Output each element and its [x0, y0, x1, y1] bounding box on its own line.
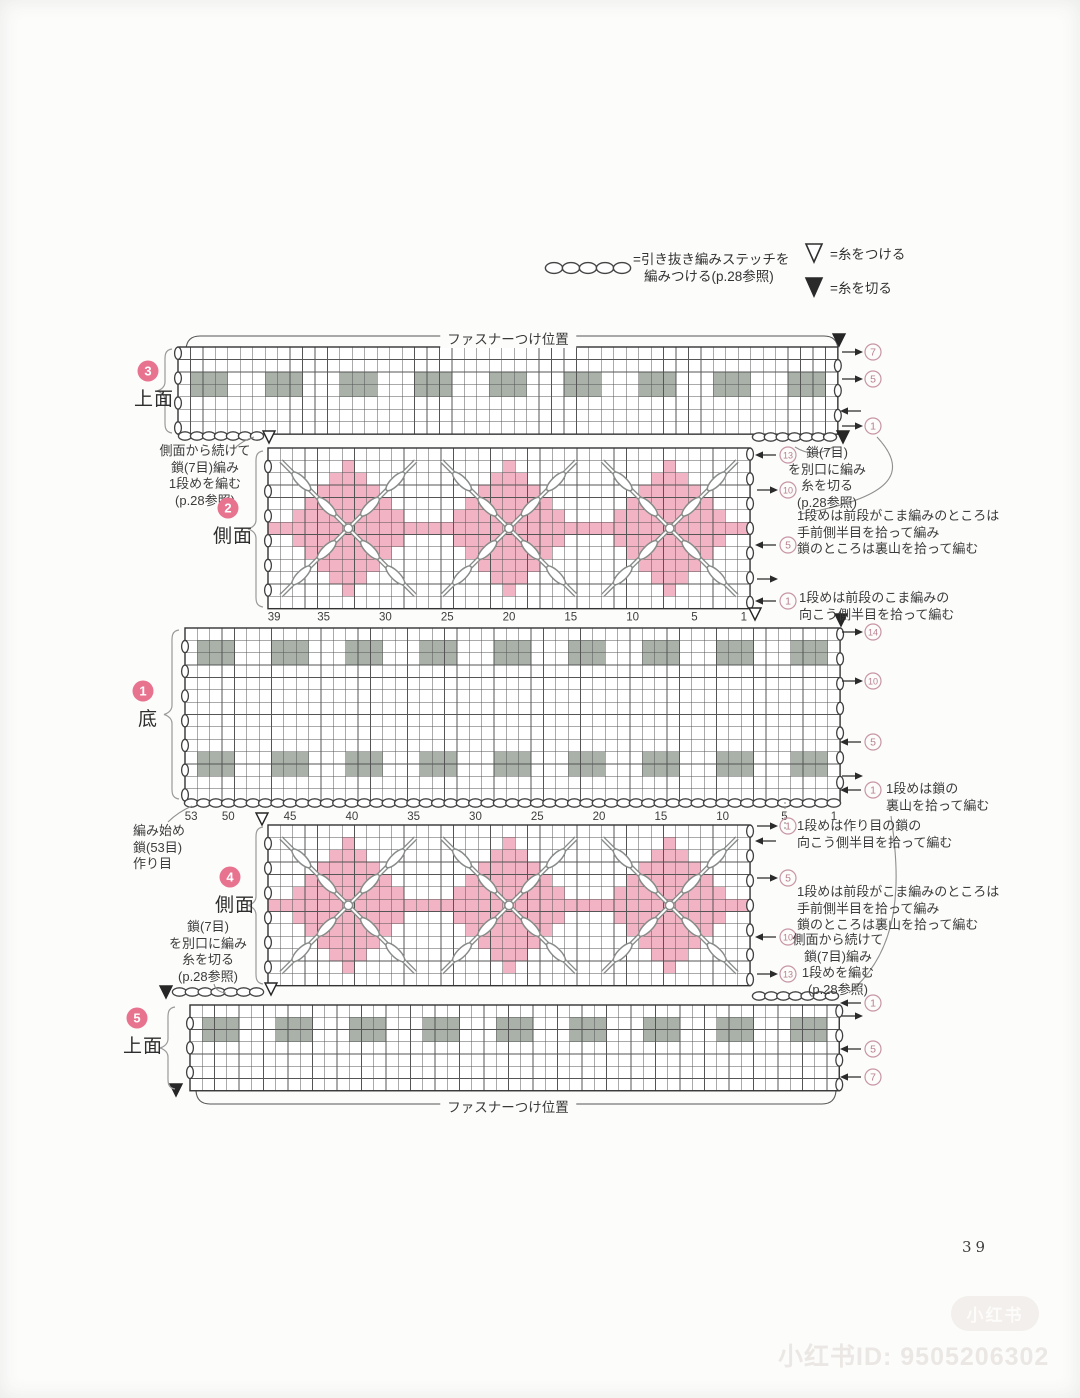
- watermark-badge: 小红书: [951, 1296, 1039, 1331]
- annotation-start-note: 編み始め鎖(53目)作り目: [133, 823, 185, 873]
- annotation-line: 向こう側半目を拾って編む: [799, 607, 954, 624]
- annotation-line: 手前側半目を拾って編み: [797, 901, 999, 918]
- section-badge-3: 3: [138, 361, 159, 382]
- annotation-line: 1段めは作り目の鎖の: [797, 818, 952, 835]
- annotation-line: (p.28参照): [169, 969, 247, 986]
- annotation-line: 鎖(7目)編み: [792, 949, 883, 966]
- annotation-line: 作り目: [133, 856, 185, 873]
- section-badge-2: 2: [218, 498, 239, 519]
- section-badge-1: 1: [133, 681, 154, 702]
- annotation-line: を別口に編み: [788, 462, 866, 479]
- annotation-line: 編み始め: [133, 823, 185, 840]
- section-name-4: 側面: [215, 890, 255, 917]
- annotation-row1-pickup-note-side-upper: 1段めは前段がこま編みのところは手前側半目を拾って編み鎖のところは裏山を拾って編…: [797, 508, 999, 558]
- annotation-chain-separate-note-right: 鎖(7目)を別口に編み糸を切る(p.28参照): [788, 445, 866, 511]
- section-name-2: 側面: [213, 521, 253, 548]
- annotation-row1-chain-note-bottom: 1段めは鎖の裏山を拾って編む: [886, 781, 989, 814]
- annotation-line: 鎖(7目)編み: [159, 460, 250, 477]
- annotation-line: 鎖のところは裏山を拾って編む: [797, 541, 999, 558]
- annotation-line: 鎖(7目): [169, 919, 247, 936]
- annotation-line: 糸を切る: [788, 478, 866, 495]
- watermark-id: 小红书ID: 9505206302: [778, 1337, 1049, 1373]
- annotation-line: 向こう側半目を拾って編む: [797, 835, 952, 852]
- annotation-line: 1段めは鎖の: [886, 781, 989, 798]
- annotation-row1-foundation-note: 1段めは作り目の鎖の向こう側半目を拾って編む: [797, 818, 952, 851]
- annotation-line: 1段めを編む: [792, 965, 883, 982]
- annotation-line: 鎖(53目): [133, 840, 185, 857]
- annotation-line: 1段めを編む: [159, 476, 250, 493]
- annotation-side-continue-note-top: 側面から続けて鎖(7目)編み1段めを編む(p.28参照): [159, 443, 250, 509]
- annotation-row1-pickup-note-upper-bottom: 1段めは前段のこま編みの向こう側半目を拾って編む: [799, 590, 954, 623]
- annotation-line: 側面から続けて: [159, 443, 250, 460]
- annotation-side-continue-note-bottom: 側面から続けて鎖(7目)編み1段めを編む(p.28参照): [792, 932, 883, 998]
- section-name-3: 上面: [134, 384, 174, 411]
- annotation-line: 糸を切る: [169, 952, 247, 969]
- annotation-line: 側面から続けて: [792, 932, 883, 949]
- annotation-line: 1段めは前段のこま編みの: [799, 590, 954, 607]
- annotation-line: 1段めは前段がこま編みのところは: [797, 508, 999, 525]
- annotation-line: 手前側半目を拾って編み: [797, 525, 999, 542]
- section-name-1: 底: [138, 704, 158, 731]
- annotation-chain-separate-note-left: 鎖(7目)を別口に編み糸を切る(p.28参照): [169, 919, 247, 985]
- annotation-row1-pickup-note-side-lower: 1段めは前段がこま編みのところは手前側半目を拾って編み鎖のところは裏山を拾って編…: [797, 884, 999, 934]
- section-badge-5: 5: [127, 1008, 148, 1029]
- annotation-line: 裏山を拾って編む: [886, 798, 989, 815]
- annotation-line: (p.28参照): [792, 982, 883, 999]
- section-badge-4: 4: [220, 867, 241, 888]
- scanned-crochet-pattern-page: 3935302520151051535045403530252015105175…: [0, 0, 1080, 1398]
- annotation-line: 1段めは前段がこま編みのところは: [797, 884, 999, 901]
- annotation-layer: 側面から続けて鎖(7目)編み1段めを編む(p.28参照)鎖(7目)を別口に編み糸…: [0, 0, 1080, 1398]
- page-number: 39: [962, 1238, 989, 1256]
- annotation-line: 鎖(7目): [788, 445, 866, 462]
- section-name-5: 上面: [123, 1031, 163, 1058]
- annotation-line: を別口に編み: [169, 936, 247, 953]
